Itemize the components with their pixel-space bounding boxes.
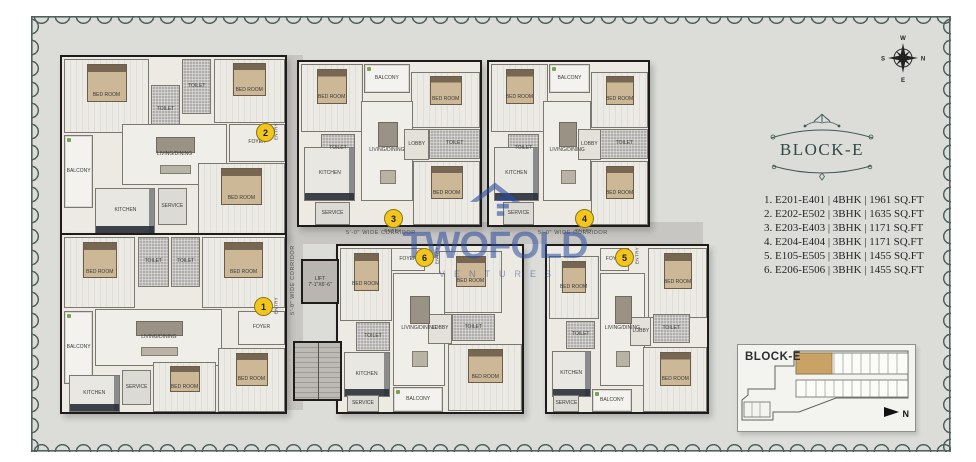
corridor-label: 5'-0" WIDE CORRIDOR	[290, 240, 296, 320]
room-label: BALCONY	[67, 169, 91, 175]
room-bedroom: BED ROOM	[439, 251, 502, 313]
room-label: BED ROOM	[238, 377, 265, 383]
room-bedroom: BED ROOM	[411, 72, 480, 128]
compass-label-w: W	[900, 36, 906, 42]
room-service: SERVICE	[315, 202, 350, 225]
floor-plan-poster: 5'-0" WIDE CORRIDOR 5'-0" WIDE CORRIDOR …	[0, 0, 976, 462]
room-bedroom: BED ROOM	[64, 237, 135, 308]
room-balcony: BALCONY	[393, 387, 443, 412]
unit-1: BED ROOM TOILET TOILET BED ROOM BALCONY …	[60, 233, 287, 414]
unit-marker-1: 1	[254, 297, 273, 316]
room-label: TOILET	[572, 332, 589, 338]
room-toilet: TOILET	[653, 314, 690, 343]
room-label: BED ROOM	[432, 97, 459, 103]
room-label: LIVING/DINING	[157, 152, 192, 158]
room-label: SERVICE	[126, 385, 148, 391]
room-bedroom: BED ROOM	[413, 161, 480, 225]
room-living: LIVING/DINING	[95, 309, 222, 366]
room-label: BALCONY	[375, 76, 399, 82]
room-balcony: BALCONY	[64, 311, 93, 384]
room-lobby: LOBBY	[404, 129, 430, 160]
room-label: LOBBY	[581, 142, 598, 148]
room-label: BED ROOM	[236, 88, 263, 94]
room-bedroom: BED ROOM	[643, 347, 707, 412]
room-label: KITCHEN	[319, 171, 341, 177]
room-toilet: TOILET	[138, 237, 169, 287]
room-label: BED ROOM	[457, 279, 484, 285]
room-bedroom: BED ROOM	[153, 362, 215, 412]
room-label: TOILET	[145, 259, 162, 265]
room-toilet: TOILET	[182, 59, 211, 114]
entry-label: ENTRY	[383, 228, 403, 233]
unit-marker-2: 2	[256, 123, 275, 142]
room-label: TOILET	[188, 84, 205, 90]
room-label: TOILET	[177, 259, 194, 265]
room-living: LIVING/DINING	[543, 101, 591, 201]
room-bedroom: BED ROOM	[549, 256, 599, 319]
entry-label: ENTRY	[274, 296, 279, 316]
room-label: LIVING/DINING	[549, 148, 584, 154]
room-label: TOILET	[662, 326, 679, 332]
room-label: TOILET	[616, 141, 633, 147]
room-service: SERVICE	[347, 395, 378, 412]
room-toilet: TOILET	[171, 237, 200, 287]
room-label: SERVICE	[161, 204, 183, 210]
room-label: TOILET	[364, 334, 381, 340]
room-bedroom: BED ROOM	[198, 163, 285, 234]
room-label: KITCHEN	[505, 171, 527, 177]
room-lobby: LOBBY	[630, 317, 651, 346]
room-bedroom: BED ROOM	[448, 344, 522, 411]
flourish-top-icon	[767, 110, 877, 140]
room-bedroom: BED ROOM	[218, 348, 285, 412]
unit-marker-4: 4	[575, 209, 594, 228]
room-bedroom: BED ROOM	[64, 59, 149, 134]
room-label: SERVICE	[508, 211, 530, 217]
flourish-bottom-icon	[767, 162, 877, 184]
room-kitchen: KITCHEN	[344, 352, 390, 397]
compass-label-s: S	[881, 57, 885, 63]
room-balcony: BALCONY	[64, 135, 93, 208]
room-toilet: TOILET	[600, 129, 648, 159]
room-balcony: BALCONY	[549, 64, 589, 94]
room-label: FOYER	[253, 325, 270, 331]
unit-list-item-4: 4. E204-E404 | 3BHK | 1171 SQ.FT	[764, 235, 914, 249]
compass-label-e: E	[901, 78, 905, 84]
room-label: BALCONY	[406, 397, 430, 403]
room-label: LOBBY	[408, 142, 425, 148]
lift-dimension: 7'-1"X6'-6"	[308, 282, 331, 288]
entry-label: ENTRY	[435, 246, 440, 266]
room-label: BED ROOM	[664, 280, 691, 286]
room-label: SERVICE	[555, 401, 577, 407]
room-label: BALCONY	[67, 345, 91, 351]
key-plan-title: BLOCK-E	[745, 351, 801, 363]
room-label: LIVING/DINING	[369, 148, 404, 154]
room-label: TOILET	[157, 107, 174, 113]
key-plan-north-label: N	[903, 409, 910, 419]
room-label: SERVICE	[322, 211, 344, 217]
room-service: SERVICE	[158, 188, 187, 225]
unit-6: BED ROOM FOYER BED ROOM TOILET LIVING/DI…	[336, 244, 524, 414]
corridor-label: 5'-0" WIDE CORRIDOR	[528, 230, 618, 236]
room-label: BALCONY	[600, 398, 624, 404]
room-bedroom: BED ROOM	[491, 64, 549, 133]
room-kitchen: KITCHEN	[304, 147, 355, 201]
unit-list-item-2: 2. E202-E502 | 3BHK | 1635 SQ.FT	[764, 207, 914, 221]
room-toilet: TOILET	[429, 129, 480, 159]
room-toilet: TOILET	[356, 322, 389, 351]
room-label: KITCHEN	[114, 208, 136, 214]
room-label: LOBBY	[632, 329, 649, 335]
room-label: TOILET	[515, 146, 532, 152]
unit-list: 1. E201-E401 | 4BHK | 1961 SQ.FT 2. E202…	[764, 193, 914, 277]
unit-list-item-1: 1. E201-E401 | 4BHK | 1961 SQ.FT	[764, 193, 914, 207]
key-plan-highlight	[796, 353, 832, 374]
room-label: BED ROOM	[228, 196, 255, 202]
room-bedroom: BED ROOM	[202, 237, 284, 308]
room-label: KITCHEN	[356, 372, 378, 378]
unit-list-item-5: 5. E105-E505 | 3BHK | 1455 SQ.FT	[764, 249, 914, 263]
room-toilet: TOILET	[566, 321, 595, 350]
room-label: TOILET	[329, 146, 346, 152]
room-kitchen: KITCHEN	[494, 147, 539, 201]
entry-label: ENTRY	[635, 246, 640, 266]
room-label: BED ROOM	[506, 95, 533, 101]
room-kitchen: KITCHEN	[69, 375, 120, 412]
room-label: TOILET	[465, 325, 482, 331]
room-bedroom: BED ROOM	[648, 248, 708, 318]
room-foyer: FOYER	[238, 311, 285, 345]
room-label: BED ROOM	[662, 377, 689, 383]
unit-3: BED ROOM BALCONY BED ROOM TOILET LIVING/…	[297, 60, 482, 227]
room-service: SERVICE	[122, 370, 151, 406]
room-label: BED ROOM	[318, 95, 345, 101]
unit-marker-3: 3	[384, 209, 403, 228]
corridor-label: 5'-0" WIDE CORRIDOR	[336, 230, 426, 236]
staircase	[293, 341, 342, 401]
room-bedroom: BED ROOM	[214, 59, 285, 123]
room-label: LIVING/DINING	[141, 335, 176, 341]
room-bedroom: BED ROOM	[591, 161, 649, 225]
unit-marker-5: 5	[615, 248, 634, 267]
room-bedroom: BED ROOM	[591, 72, 649, 128]
compass-label-n: N	[921, 57, 925, 63]
unit-4: BED ROOM BALCONY BED ROOM TOILET LIVING/…	[487, 60, 650, 227]
room-label: BED ROOM	[93, 93, 120, 99]
room-label: BALCONY	[558, 76, 582, 82]
room-label: SERVICE	[352, 401, 374, 407]
room-label: BED ROOM	[86, 270, 113, 276]
room-label: BED ROOM	[352, 282, 379, 288]
room-label: BED ROOM	[230, 270, 257, 276]
unit-marker-6: 6	[415, 248, 434, 267]
room-label: BED ROOM	[606, 191, 633, 197]
room-label: KITCHEN	[560, 371, 582, 377]
room-label: BED ROOM	[606, 97, 633, 103]
room-label: TOILET	[446, 141, 463, 147]
room-kitchen: KITCHEN	[552, 351, 591, 398]
room-label: KITCHEN	[83, 391, 105, 397]
room-service: SERVICE	[553, 395, 579, 412]
entry-label: ENTRY	[274, 122, 279, 142]
room-label: LOBBY	[432, 326, 449, 332]
block-title: BLOCK-E	[755, 140, 889, 160]
unit-list-item-3: 3. E203-E403 | 3BHK | 1171 SQ.FT	[764, 221, 914, 235]
entry-label: ENTRY	[574, 228, 594, 233]
room-balcony: BALCONY	[364, 64, 409, 94]
room-toilet: TOILET	[452, 314, 494, 341]
unit-5: BED ROOM FOYER BED ROOM TOILET LIVING/DI…	[545, 244, 709, 414]
unit-2: BED ROOM TOILET TOILET BED ROOM BALCONY …	[60, 55, 287, 236]
room-lobby: LOBBY	[578, 129, 601, 160]
room-label: BED ROOM	[433, 191, 460, 197]
room-label: BED ROOM	[171, 385, 198, 391]
compass-rose-icon: W N S E	[877, 32, 929, 84]
room-balcony: BALCONY	[592, 389, 632, 413]
room-bedroom: BED ROOM	[340, 248, 392, 321]
room-lobby: LOBBY	[428, 314, 452, 344]
room-label: BED ROOM	[560, 285, 587, 291]
room-bedroom: BED ROOM	[301, 64, 363, 133]
room-service: SERVICE	[503, 202, 534, 225]
key-plan: BLOCK-E N	[737, 344, 916, 432]
lift: LIFT 7'-1"X6'-6"	[301, 259, 339, 304]
room-kitchen: KITCHEN	[95, 188, 155, 234]
unit-list-item-6: 6. E206-E506 | 3BHK | 1455 SQ.FT	[764, 263, 914, 277]
room-label: BED ROOM	[472, 375, 499, 381]
north-arrow-icon	[884, 407, 899, 417]
